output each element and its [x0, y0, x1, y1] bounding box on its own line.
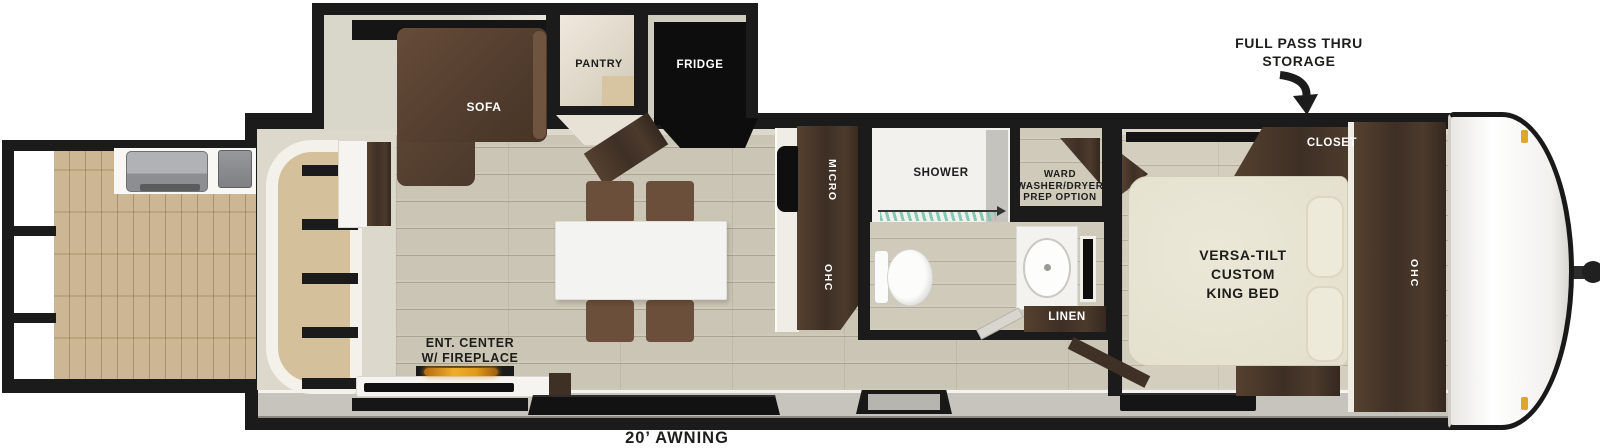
rear-entry-step: [302, 273, 358, 284]
deck-rail-bottom: [2, 379, 256, 393]
toilet: [887, 249, 933, 306]
bedroom-window: [1126, 132, 1260, 142]
rear-wardrobe: [367, 142, 391, 226]
ward-label-line1: WARD: [1008, 169, 1112, 181]
pantry-shelf: [602, 76, 634, 110]
shower-curtain-arrow-icon: [997, 206, 1006, 216]
ent-center-label: ENT. CENTER W/ FIREPLACE: [380, 336, 560, 366]
ward-label-line3: PREP OPTION: [1008, 192, 1112, 204]
fireplace-flame: [424, 368, 498, 376]
fridge-label: FRIDGE: [654, 59, 746, 73]
ent-center-endcap: [549, 373, 571, 398]
awning-label: 20’ AWNING: [577, 429, 777, 448]
sink-drain: [1044, 264, 1051, 271]
ward-label: WARD WASHER/DRYER PREP OPTION: [1008, 169, 1112, 204]
bed-label: VERSA-TILT CUSTOM KING BED: [1143, 246, 1343, 303]
dinette-table: [555, 221, 727, 300]
rear-entry-step: [302, 327, 358, 338]
storage-callout-line1: FULL PASS THRU: [1209, 34, 1389, 52]
marker-light: [1521, 397, 1528, 410]
bath-mirror: [1080, 236, 1096, 302]
rear-counter: [338, 140, 368, 228]
fridge: [654, 22, 746, 125]
kitchen-ohc-label: OHC: [814, 256, 834, 300]
storage-arrow-icon: [1272, 70, 1328, 116]
lower-trim: [352, 398, 528, 411]
shower-label: SHOWER: [872, 167, 1010, 181]
storage-callout-line2: STORAGE: [1209, 52, 1389, 70]
deck-rail-left: [2, 140, 14, 393]
closet-label: CLOSET: [1292, 137, 1372, 151]
ward-label-line2: WASHER/DRYER: [1008, 181, 1112, 193]
dinette-chair: [586, 181, 634, 223]
ent-center-label-line2: W/ FIREPLACE: [380, 351, 560, 366]
ent-center-tv: [364, 383, 514, 392]
rear-entry-step: [302, 378, 358, 389]
storage-callout: FULL PASS THRU STORAGE: [1209, 34, 1389, 70]
range: [777, 146, 798, 212]
bed-label-line2: CUSTOM: [1143, 265, 1343, 284]
bed-label-line1: VERSA-TILT: [1143, 246, 1343, 265]
ward-bottom-wall: [1012, 206, 1112, 220]
bedroom-ohc-cabinet: [1348, 122, 1446, 412]
entry-door-stepwell-inner: [868, 394, 940, 410]
grill-front-lip: [140, 184, 200, 191]
bedroom-ohc-label: OHC: [1400, 248, 1420, 300]
rv-floorplan: SOFA PANTRY FRIDGE MICRO OHC SHOWER WARD…: [0, 0, 1600, 448]
pantry-label: PANTRY: [560, 58, 638, 71]
dinette-chair: [646, 181, 694, 223]
sofa-label: SOFA: [424, 100, 544, 114]
linen-label: LINEN: [1028, 311, 1106, 325]
sofa-arm: [533, 31, 546, 139]
micro-label: MICRO: [818, 150, 838, 210]
marker-light: [1521, 130, 1528, 143]
ent-center-label-line1: ENT. CENTER: [380, 336, 560, 351]
dinette-chair: [646, 300, 694, 342]
entry-step: [528, 395, 780, 415]
shower-curtain: [880, 212, 996, 221]
outdoor-side-table: [218, 150, 252, 188]
sofa: [397, 28, 547, 142]
dinette-chair: [586, 300, 634, 342]
hitch-ball: [1582, 261, 1600, 283]
deck-rail-stub: [12, 226, 56, 236]
deck-rail-stub: [12, 313, 56, 323]
bedroom-wall: [1108, 116, 1122, 396]
front-cap: [1448, 112, 1574, 430]
bed-bench: [1236, 366, 1340, 396]
bed-label-line3: KING BED: [1143, 284, 1343, 303]
